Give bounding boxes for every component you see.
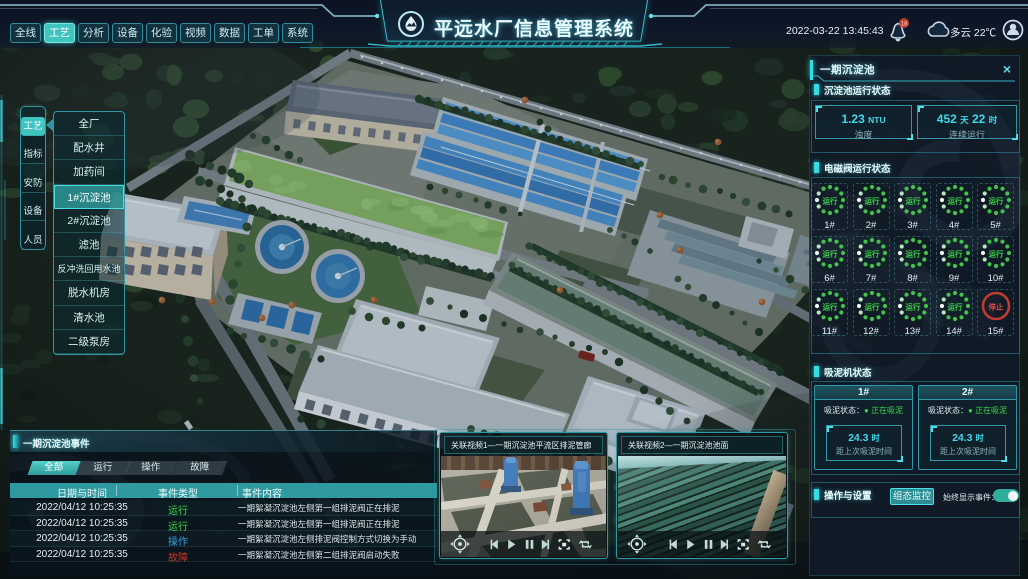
svg-text:运行: 运行: [823, 302, 838, 312]
svg-text:运行: 运行: [947, 302, 962, 312]
svg-text:运行: 运行: [989, 196, 1004, 206]
svg-text:停止: 停止: [989, 302, 1004, 312]
svg-text:运行: 运行: [906, 249, 921, 259]
svg-text:运行: 运行: [823, 249, 838, 259]
svg-text:运行: 运行: [906, 302, 921, 312]
svg-text:运行: 运行: [864, 196, 879, 206]
svg-text:运行: 运行: [947, 196, 962, 206]
svg-text:运行: 运行: [864, 302, 879, 312]
svg-text:运行: 运行: [906, 196, 921, 206]
svg-text:运行: 运行: [947, 249, 962, 259]
svg-text:运行: 运行: [989, 249, 1004, 259]
svg-text:运行: 运行: [864, 249, 879, 259]
svg-text:运行: 运行: [823, 196, 838, 206]
